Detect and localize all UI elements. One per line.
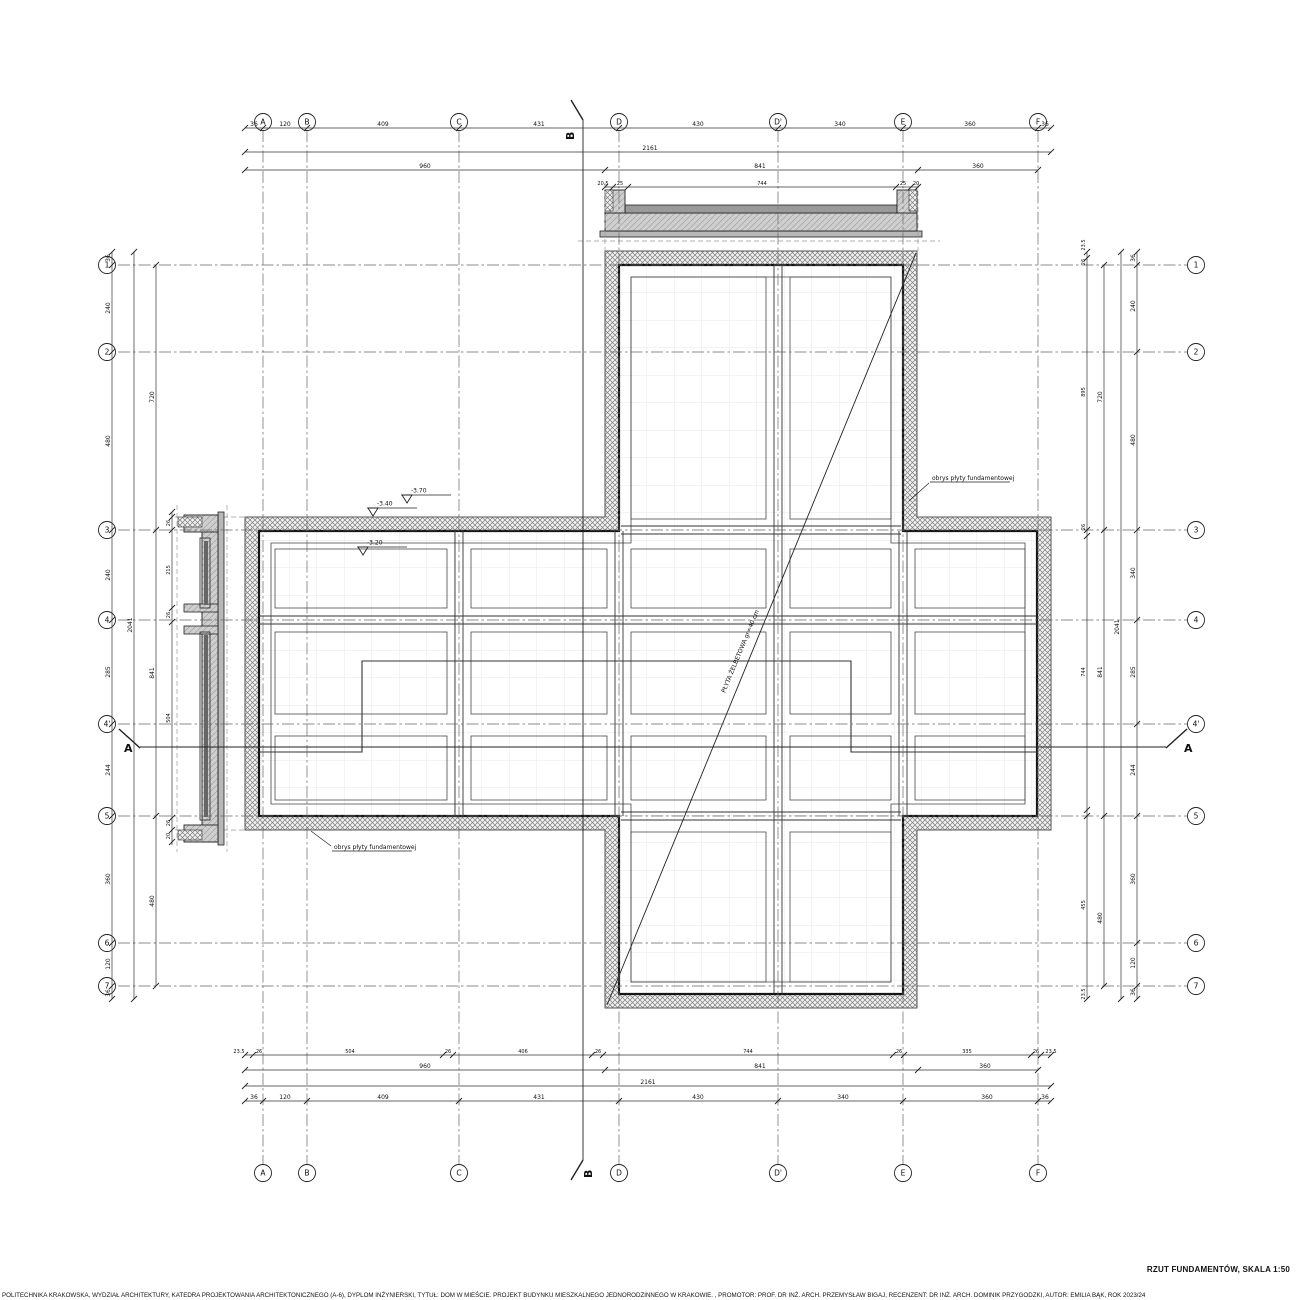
dim-label: 20 — [166, 833, 172, 839]
dim-label: 215 — [166, 565, 172, 575]
dim-label: 340 — [834, 121, 846, 128]
section-label-b-bottom: B — [582, 1170, 595, 1178]
axis-bubble-label: 4 — [105, 616, 110, 625]
dim-label: 744 — [743, 1049, 753, 1055]
foundation-plan-sheet: AABBCCDDD'D'EEFF112233444'4'556677BBAA 3… — [0, 0, 1300, 1300]
axis-bubble-label: 4 — [1194, 616, 1199, 625]
dim-label: 26 — [1081, 524, 1087, 530]
dim-label: 36 — [250, 1094, 258, 1101]
dim-label: 285 — [1130, 666, 1137, 678]
left-detail-edge-plate — [218, 512, 224, 845]
dim-label: 26 — [595, 1049, 601, 1055]
slab-mesh-grid — [245, 251, 1051, 1008]
level-value: -3.70 — [411, 488, 427, 495]
dim-label: 895 — [1081, 387, 1087, 397]
axis-bubble-label: 6 — [1194, 939, 1199, 948]
dim-label: 285 — [105, 666, 112, 678]
dim-label: 431 — [533, 1094, 545, 1101]
dim-label: 26 — [445, 1049, 451, 1055]
dim-label: 430 — [692, 121, 704, 128]
dim-label: 20.5 — [597, 181, 608, 187]
dim-label: 431 — [533, 121, 545, 128]
level-value: -3.20 — [367, 540, 383, 547]
axis-bubble-label: 2 — [1194, 348, 1199, 357]
dim-label: 36 — [105, 254, 112, 262]
dim-label: 504 — [345, 1049, 355, 1055]
dim-label: 960 — [419, 163, 431, 170]
dim-label: 2161 — [640, 1079, 655, 1086]
axis-bubble-label: D' — [774, 1169, 782, 1178]
left-detail-bottom-insulation — [178, 830, 202, 840]
level-marker-triangle — [368, 508, 378, 516]
dim-label: 120 — [279, 121, 291, 128]
dim-label: 36 — [1130, 254, 1137, 262]
dim-label: 26 — [896, 1049, 902, 1055]
axis-bubble-label: 5 — [105, 812, 110, 821]
top-detail-right-insulation — [909, 190, 917, 211]
dim-label: 841 — [1097, 666, 1104, 678]
dim-label: 360 — [105, 873, 112, 885]
axis-bubble-label: 4' — [1193, 720, 1200, 729]
dim-label: 720 — [149, 391, 156, 403]
dim-label: 26 — [1033, 1049, 1039, 1055]
dim-label: 744 — [757, 181, 767, 187]
level-marker-triangle — [402, 495, 412, 503]
left-detail-lining-core — [204, 635, 208, 817]
dim-label: 409 — [377, 121, 389, 128]
dim-label: 26 — [256, 1049, 262, 1055]
dim-label: 36 — [1130, 988, 1137, 996]
dim-label: 120 — [279, 1094, 291, 1101]
dim-label: 841 — [754, 163, 766, 170]
dim-label: 720 — [1097, 391, 1104, 403]
dim-label: 23.5 — [1081, 239, 1087, 250]
axis-bubble-label: 6 — [105, 939, 110, 948]
dim-label: 2041 — [1114, 619, 1121, 634]
dim-label: 36 — [250, 121, 258, 128]
dim-label: 960 — [419, 1063, 431, 1070]
dim-label: 240 — [105, 302, 112, 314]
dim-label: 240 — [1130, 300, 1137, 312]
left-detail-top-insulation — [178, 517, 202, 527]
axis-bubble-label: B — [304, 1169, 309, 1178]
axis-bubble-label: E — [901, 118, 906, 127]
left-detail-lining-core — [204, 541, 208, 605]
title-block-footer: POLITECHNIKA KRAKOWSKA, WYDZIAŁ ARCHITEK… — [2, 1292, 1300, 1299]
dim-label: 360 — [981, 1094, 993, 1101]
dim-label: 504 — [166, 713, 172, 723]
dim-label: 36 — [1041, 121, 1049, 128]
axis-bubble-label: 4' — [104, 720, 111, 729]
leader-text: obrys płyty fundamentowej — [334, 844, 417, 851]
dim-label: 25 — [900, 181, 906, 187]
dim-label: 480 — [1130, 434, 1137, 446]
dim-label: 26 — [166, 520, 172, 526]
dim-label: 360 — [972, 163, 984, 170]
section-label-a-right: A — [1184, 742, 1193, 755]
axis-bubble-label: 3 — [105, 526, 110, 535]
dim-label: 409 — [377, 1094, 389, 1101]
axis-bubble-label: F — [1036, 1169, 1040, 1178]
dim-label: 244 — [1130, 764, 1137, 776]
dim-label: 841 — [754, 1063, 766, 1070]
dim-label: 36 — [1041, 1094, 1049, 1101]
axis-bubble-label: A — [260, 1169, 266, 1178]
dim-label: 360 — [1130, 873, 1137, 885]
dim-label: 360 — [979, 1063, 991, 1070]
dim-label: 120 — [1130, 957, 1137, 969]
dim-label: 2041 — [127, 617, 134, 632]
leader-line — [311, 831, 331, 846]
dim-label: 26 — [1081, 259, 1087, 265]
top-detail-slab — [605, 213, 917, 231]
axis-bubble-label: C — [456, 1169, 461, 1178]
dim-label: 25 — [617, 181, 623, 187]
axis-bubble-label: 5 — [1194, 812, 1199, 821]
dim-label: 23.5 — [233, 1049, 244, 1055]
dim-label: 480 — [105, 435, 112, 447]
left-detail-rib — [184, 626, 218, 634]
dim-label: 26 — [166, 820, 172, 826]
dim-label: 23.5 — [1045, 1049, 1056, 1055]
dim-label: 340 — [1130, 567, 1137, 579]
dim-label: 20 — [913, 181, 919, 187]
foundation-plan-drawing: AABBCCDDD'D'EEFF112233444'4'556677BBAA 3… — [0, 0, 1300, 1300]
axis-bubble-label: 1 — [1194, 261, 1199, 270]
dim-label: 120 — [105, 958, 112, 970]
dim-label: 841 — [149, 667, 156, 679]
dim-label: 36 — [105, 989, 112, 997]
axis-bubble-label: B — [304, 118, 309, 127]
dim-label: 340 — [837, 1094, 849, 1101]
top-detail-screed — [625, 205, 897, 213]
dim-label: 455 — [1081, 900, 1087, 910]
dim-label: 335 — [962, 1049, 972, 1055]
axis-bubble-label: D — [616, 1169, 622, 1178]
axis-bubble-label: 2 — [105, 348, 110, 357]
section-label-b-top: B — [564, 132, 577, 140]
leader-text: obrys płyty fundamentowej — [932, 475, 1015, 482]
level-value: -3.40 — [377, 501, 393, 508]
dim-label: 240 — [105, 569, 112, 581]
dim-label: 2161 — [642, 145, 657, 152]
dim-label: 23.5 — [1081, 988, 1087, 999]
dim-label: 430 — [692, 1094, 704, 1101]
axis-bubble-label: 7 — [1194, 982, 1199, 991]
axis-bubble-label: E — [901, 1169, 906, 1178]
dim-label: 360 — [964, 121, 976, 128]
top-detail-base-plate — [600, 231, 922, 237]
drawing-title: RZUT FUNDAMENTÓW, SKALA 1:50 — [1147, 1265, 1290, 1274]
dim-label: 744 — [1081, 667, 1087, 677]
dim-label: 26 — [166, 612, 172, 618]
axis-bubble-label: F — [1036, 118, 1040, 127]
top-detail-left-insulation — [605, 190, 613, 211]
axis-bubble-label: 3 — [1194, 526, 1199, 535]
section-label-a-left: A — [124, 742, 133, 755]
dim-label: 480 — [1097, 912, 1104, 924]
axis-bubble-label: C — [456, 118, 461, 127]
dim-label: 244 — [105, 764, 112, 776]
dim-label: 480 — [149, 895, 156, 907]
dim-label: 406 — [518, 1049, 528, 1055]
section-flag-b-top — [571, 100, 583, 120]
